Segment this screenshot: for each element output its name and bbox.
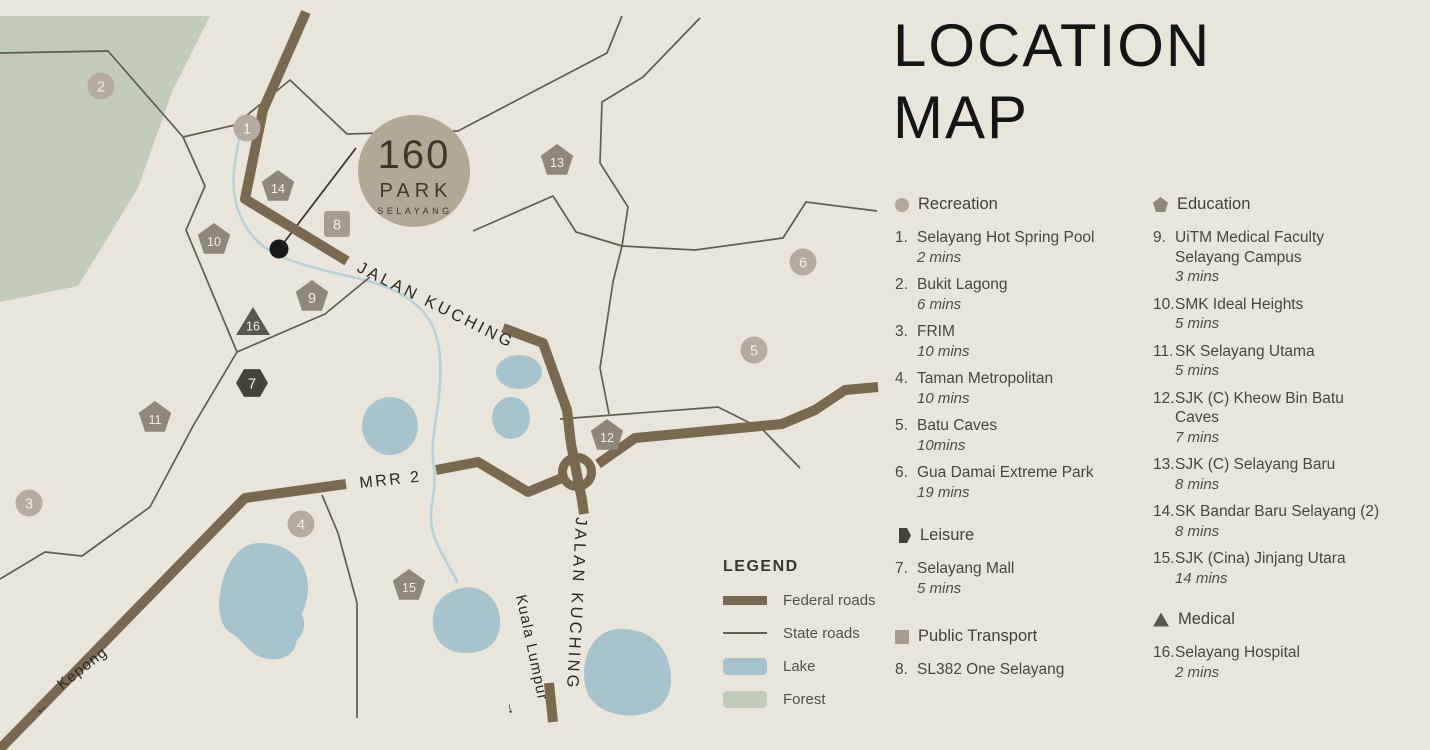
poi-name: FRIM [917,322,970,342]
poi-item: 12.SJK (C) Kheow Bin Batu Caves7 mins [1153,389,1425,448]
section-label-public-transport: Public Transport [918,627,1037,646]
poi-time: 6 mins [917,295,1008,315]
marker-number: 12 [600,431,614,445]
legend-swatch-federal [723,596,767,605]
legend-title: LEGEND [723,558,876,576]
legend-item-federal: Federal roads [723,590,876,610]
map-marker-13: 13 [541,144,573,175]
legend-swatch-state [723,632,767,634]
map-marker-8: 8 [324,211,350,237]
section-leisure: Leisure7.Selayang Mall5 mins [895,526,1147,606]
poi-time: 10 mins [917,389,1053,409]
mrr2-mid [436,462,562,492]
poi-item: 11.SK Selayang Utama5 mins [1153,342,1425,381]
poi-time: 19 mins [917,483,1094,503]
marker-number: 15 [402,581,416,595]
poi-name: SK Selayang Utama [1175,342,1315,362]
poi-name: Selayang Hot Spring Pool [917,228,1095,248]
mrr2-east [598,387,878,464]
poi-item: 7.Selayang Mall5 mins [895,559,1147,598]
poi-number: 1. [895,228,917,267]
section-header-public-transport: Public Transport [895,627,1147,646]
education-pentagon-icon [1153,197,1168,212]
poi-number: 13. [1153,455,1175,494]
poi-time: 5 mins [1175,361,1315,381]
poi-time: 10 mins [917,342,970,362]
recreation-circle-icon [895,198,909,212]
poi-item: 5.Batu Caves10mins [895,416,1147,455]
map-marker-15: 15 [393,569,425,600]
poi-time: 3 mins [1175,267,1324,287]
section-public-transport: Public Transport8.SL382 One Selayang [895,627,1147,688]
marker-number: 7 [248,377,256,393]
marker-number: 2 [97,80,105,96]
poi-number: 14. [1153,502,1175,541]
poi-item: 1.Selayang Hot Spring Pool2 mins [895,228,1147,267]
poi-name: Taman Metropolitan [917,369,1053,389]
poi-name: Batu Caves [917,416,997,436]
map-marker-16: 16 [236,307,270,335]
marker-number: 13 [550,156,564,170]
legend-label-federal: Federal roads [783,592,876,609]
poi-item: 2.Bukit Lagong6 mins [895,275,1147,314]
map-marker-9: 9 [296,280,328,311]
map-marker-12: 12 [591,419,623,450]
poi-number: 4. [895,369,917,408]
poi-time: 8 mins [1175,475,1335,495]
legend-item-lake: Lake [723,656,876,676]
medical-triangle-icon [1153,613,1169,627]
section-label-education: Education [1177,195,1250,214]
map-marker-7: 7 [236,369,268,397]
poi-name: SJK (C) Selayang Baru [1175,455,1335,475]
legend-item-state: State roads [723,623,876,643]
poi-number: 2. [895,275,917,314]
poi-number: 8. [895,660,917,680]
poi-name: SL382 One Selayang [917,660,1064,680]
leisure-hexagon-icon [895,528,911,543]
legend: LEGEND Federal roadsState roadsLakeFores… [723,558,876,722]
legend-label-forest: Forest [783,691,826,708]
poi-number: 15. [1153,549,1175,588]
project-logo-badge: 160 PARK SELAYANG [358,115,470,227]
poi-name: SJK (C) Kheow Bin Batu Caves [1175,389,1344,428]
section-recreation: Recreation1.Selayang Hot Spring Pool2 mi… [895,195,1147,510]
forest-area [0,16,210,302]
map-marker-11: 11 [139,401,171,432]
poi-time: 5 mins [1175,314,1303,334]
marker-number: 4 [297,518,305,534]
section-education: Education9.UiTM Medical Faculty Selayang… [1153,195,1425,596]
marker-number: 8 [333,218,341,234]
poi-number: 3. [895,322,917,361]
poi-number: 12. [1153,389,1175,448]
poi-name: Selayang Hospital [1175,643,1300,663]
poi-item: 10.SMK Ideal Heights5 mins [1153,295,1425,334]
logo-name: PARK [380,180,453,202]
marker-number: 9 [308,291,316,307]
section-medical: Medical16.Selayang Hospital2 mins [1153,610,1425,690]
marker-number: 1 [243,122,251,138]
legend-label-lake: Lake [783,658,816,675]
poi-number: 9. [1153,228,1175,287]
page-title-line1: LOCATION [893,10,1211,82]
map-marker-14: 14 [262,170,294,201]
section-label-leisure: Leisure [920,526,974,545]
marker-number: 16 [246,320,260,334]
poi-name: SJK (Cina) Jinjang Utara [1175,549,1346,569]
poi-number: 10. [1153,295,1175,334]
poi-item: 15.SJK (Cina) Jinjang Utara14 mins [1153,549,1425,588]
legend-swatch-lake [723,658,767,675]
map-marker-2: 2 [88,73,115,100]
poi-time: 10mins [917,436,997,456]
poi-item: 3.FRIM10 mins [895,322,1147,361]
poi-number: 7. [895,559,917,598]
poi-name: SMK Ideal Heights [1175,295,1303,315]
poi-number: 5. [895,416,917,455]
poi-item: 9.UiTM Medical Faculty Selayang Campus3 … [1153,228,1425,287]
poi-name: Selayang Mall [917,559,1014,579]
poi-item: 4.Taman Metropolitan10 mins [895,369,1147,408]
poi-number: 6. [895,463,917,502]
section-label-medical: Medical [1178,610,1235,629]
page-title: LOCATION MAP [893,10,1211,154]
poi-item: 13.SJK (C) Selayang Baru8 mins [1153,455,1425,494]
poi-item: 14.SK Bandar Baru Selayang (2)8 mins [1153,502,1425,541]
legend-label-state: State roads [783,625,860,642]
poi-name: UiTM Medical Faculty Selayang Campus [1175,228,1324,267]
map-marker-6: 6 [790,249,817,276]
section-header-education: Education [1153,195,1425,214]
logo-number: 160 [378,133,451,177]
marker-number: 5 [750,344,758,360]
logo-subtitle: SELAYANG [377,206,452,216]
marker-number: 3 [25,497,33,513]
poi-name: Gua Damai Extreme Park [917,463,1094,483]
poi-number: 11. [1153,342,1175,381]
page-title-line2: MAP [893,82,1211,154]
marker-number: 14 [271,182,285,196]
road-label-kuala-lumpur: Kuala Lumpur [512,593,551,702]
map-marker-10: 10 [198,223,230,254]
site-dot [270,240,289,259]
map-marker-5: 5 [741,337,768,364]
poi-number: 16. [1153,643,1175,682]
poi-item: 16.Selayang Hospital2 mins [1153,643,1425,682]
section-label-recreation: Recreation [918,195,998,214]
section-header-medical: Medical [1153,610,1425,629]
poi-item: 8.SL382 One Selayang [895,660,1147,680]
poi-item: 6.Gua Damai Extreme Park19 mins [895,463,1147,502]
road-label-kepong: Kepong [54,643,111,693]
section-header-leisure: Leisure [895,526,1147,545]
poi-time: 7 mins [1175,428,1344,448]
lakes [219,355,671,715]
section-header-recreation: Recreation [895,195,1147,214]
marker-number: 11 [149,413,162,427]
map-marker-1: 1 [234,115,261,142]
poi-time: 2 mins [917,248,1095,268]
marker-number: 6 [799,256,807,272]
map-marker-3: 3 [16,490,43,517]
public-transport-square-icon [895,630,909,644]
kuala-lumpur-arrow: → [502,699,522,718]
poi-time: 14 mins [1175,569,1346,589]
marker-number: 10 [207,235,221,249]
poi-name: Bukit Lagong [917,275,1008,295]
poi-time: 8 mins [1175,522,1379,542]
map-marker-4: 4 [288,511,315,538]
poi-name: SK Bandar Baru Selayang (2) [1175,502,1379,522]
road-label-mrr2: MRR 2 [359,469,423,492]
legend-swatch-forest [723,691,767,708]
poi-time: 5 mins [917,579,1014,599]
legend-item-forest: Forest [723,689,876,709]
location-map-poster: JALAN KUCHING JALAN KUCHING MRR 2 Kepong… [0,0,1430,750]
poi-time: 2 mins [1175,663,1300,683]
